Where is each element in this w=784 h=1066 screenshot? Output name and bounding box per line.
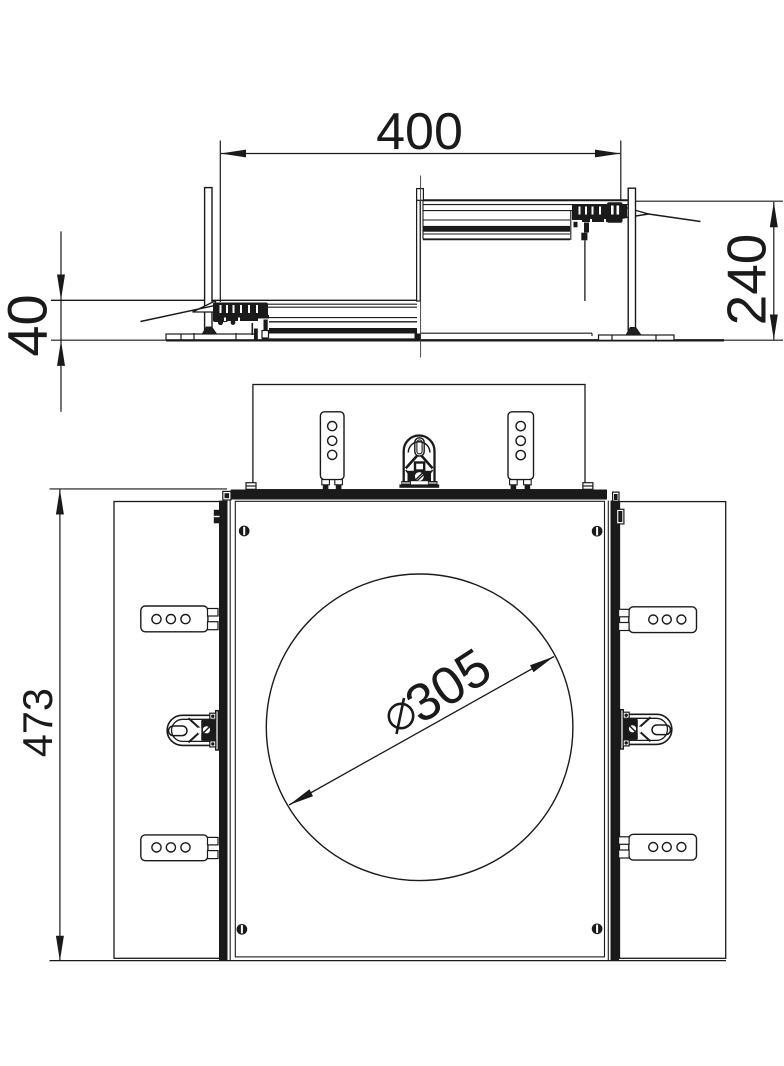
svg-text:400: 400 [376, 103, 463, 161]
svg-text:240: 240 [716, 234, 778, 326]
svg-text:473: 473 [14, 688, 61, 757]
svg-text:40: 40 [0, 294, 58, 356]
